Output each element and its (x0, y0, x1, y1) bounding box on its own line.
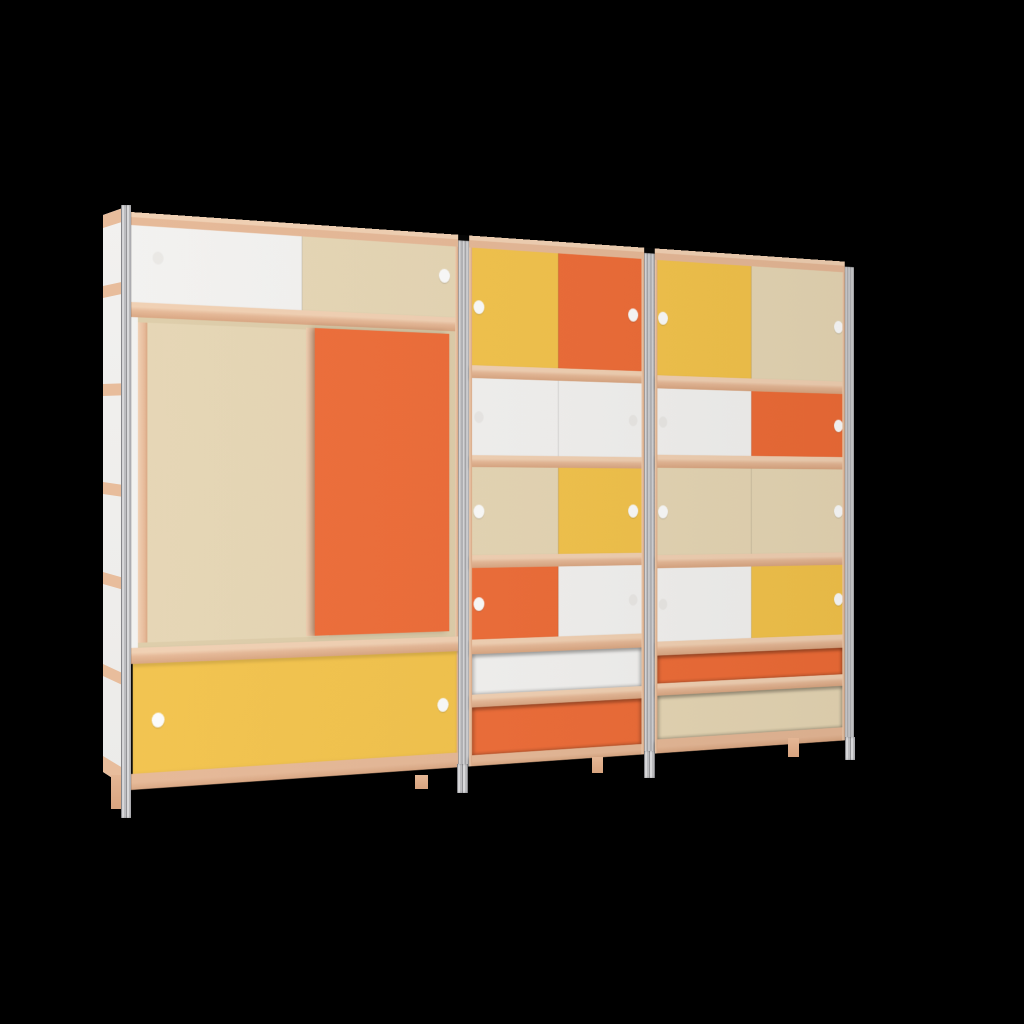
door-knob (658, 505, 668, 518)
wood-foot (788, 738, 799, 757)
door-gap (751, 266, 752, 378)
metal-leg (845, 737, 855, 760)
door-panel (302, 236, 458, 317)
door-gap (558, 253, 559, 368)
door-knob (153, 251, 164, 265)
sliding-door-back (138, 322, 329, 642)
door-knob (628, 308, 638, 322)
door-edge-strip (138, 322, 147, 642)
door-edge-strip (306, 328, 315, 636)
cabinet-unit-right (655, 248, 845, 753)
door-knob (474, 411, 483, 423)
door-gap (751, 566, 752, 637)
door-gap (751, 391, 752, 456)
door-knob (474, 300, 485, 314)
door-gap (751, 469, 752, 554)
door-panel (751, 266, 844, 382)
door-gap (558, 468, 559, 554)
wood-foot (592, 757, 603, 773)
door-panel (655, 567, 752, 642)
wood-foot (415, 775, 428, 789)
sliding-door-front (315, 328, 450, 636)
interior-side (131, 317, 138, 648)
door-gap (558, 566, 559, 636)
door-knob (474, 505, 485, 519)
metal-post (458, 240, 469, 767)
door-knob (659, 416, 668, 428)
wood-foot (111, 775, 121, 809)
cabinet-front-plane (131, 212, 854, 790)
door-knob (629, 415, 638, 427)
metal-post (644, 253, 655, 754)
cabinet-unit-middle (469, 236, 644, 767)
door-panel (751, 391, 844, 457)
side-wall-edge (655, 260, 658, 754)
door-gap (558, 381, 559, 456)
metal-leg (457, 764, 468, 793)
door-panel (751, 469, 844, 554)
door-panel (131, 225, 302, 310)
door-knob (658, 312, 668, 326)
metal-leg (644, 751, 655, 778)
door-knob (628, 505, 638, 518)
metal-post (845, 267, 854, 741)
door-gap (301, 236, 303, 310)
door-panel (655, 468, 752, 555)
door-panel (655, 260, 752, 379)
door-knob (439, 269, 450, 284)
furniture-render-scene (0, 0, 1024, 1024)
metal-post (121, 205, 131, 818)
cabinet-unit-left (131, 212, 458, 790)
side-wall-edge (469, 247, 472, 766)
door-panel (751, 565, 844, 638)
door-panel (655, 388, 752, 456)
